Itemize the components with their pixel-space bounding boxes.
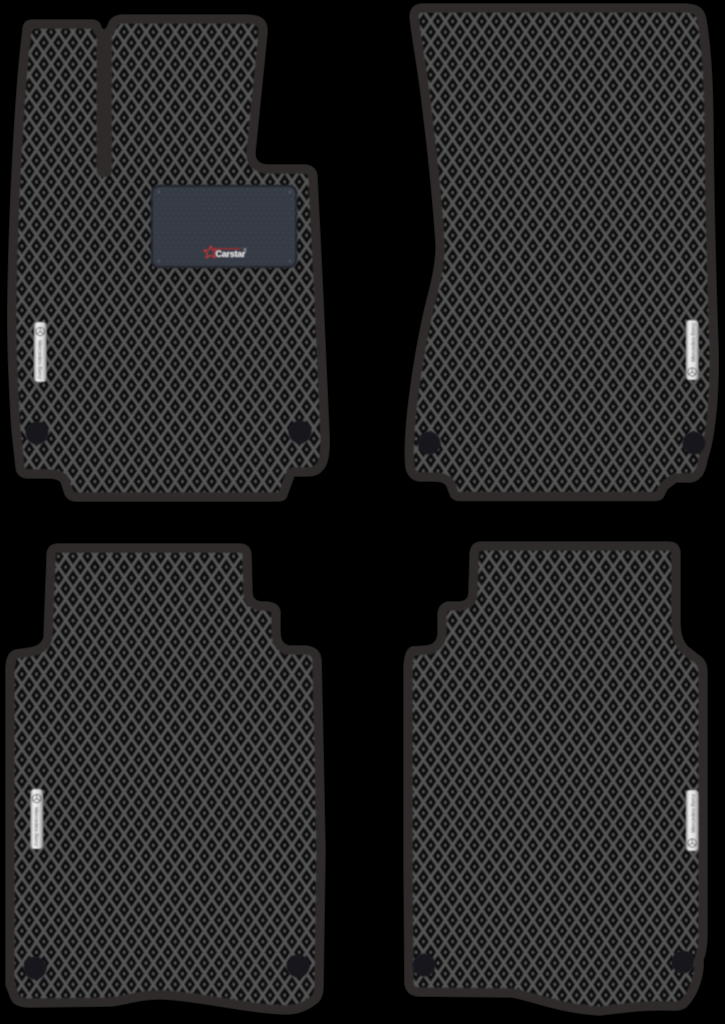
svg-text:Mercedes-Benz: Mercedes-Benz [691,323,697,362]
svg-text:Carstar: Carstar [216,249,247,259]
svg-text:Mercedes-Benz: Mercedes-Benz [691,794,697,833]
svg-text:Mercedes-Benz: Mercedes-Benz [36,340,42,379]
svg-text:Mercedes-Benz: Mercedes-Benz [32,807,38,846]
